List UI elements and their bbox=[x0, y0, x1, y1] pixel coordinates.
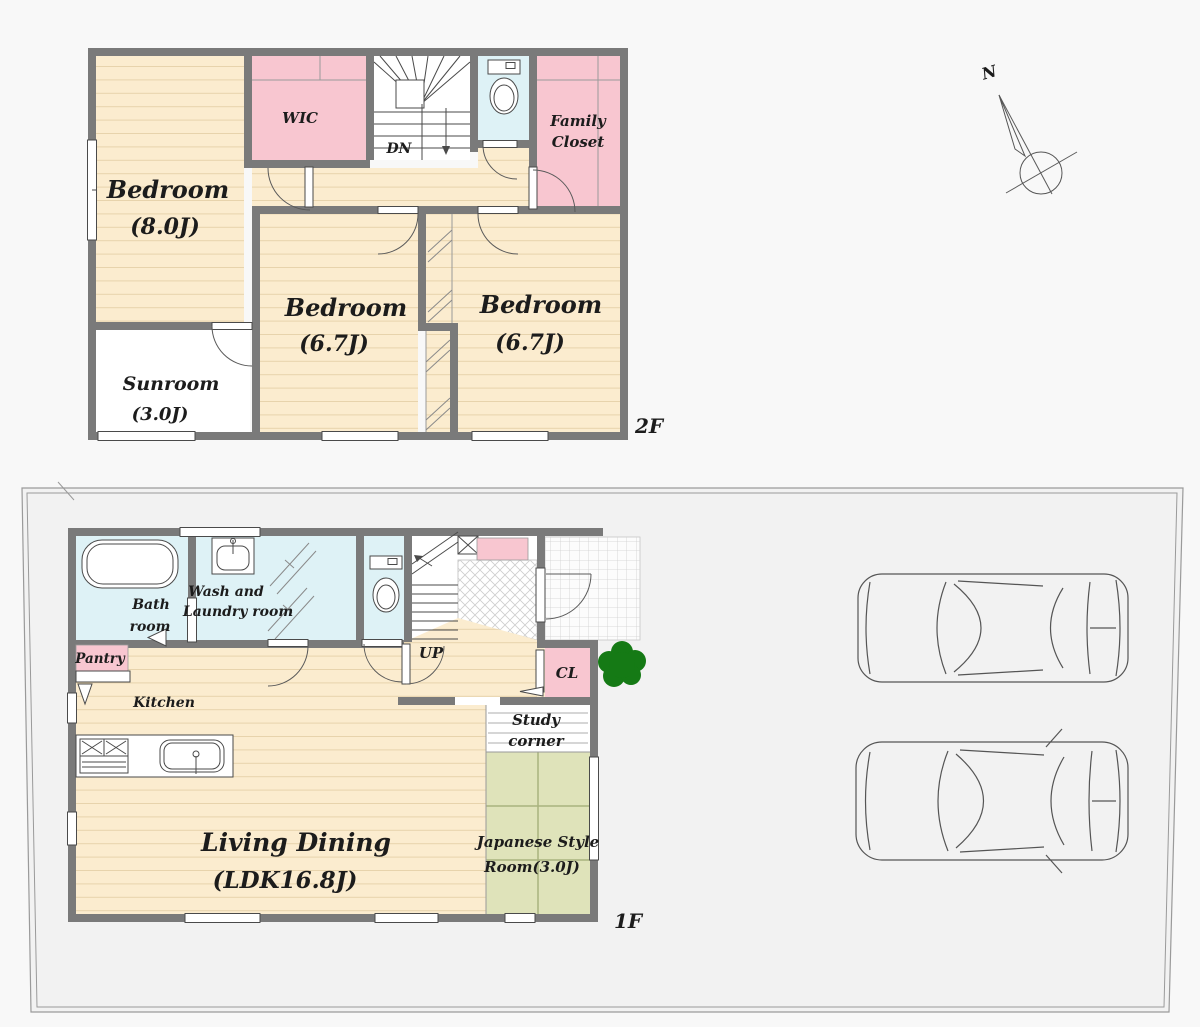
entry-shaft-box bbox=[458, 536, 478, 554]
japanese-room-label-2: Room(3.0J) bbox=[483, 858, 580, 876]
window-south-living-2 bbox=[375, 914, 438, 923]
toilet1f-door-leaf bbox=[362, 640, 402, 647]
bedroom-right-door-leaf bbox=[478, 207, 518, 214]
shoe-cabinet bbox=[477, 538, 528, 560]
bedroom-center-label: Bedroom bbox=[284, 293, 407, 322]
window-sunroom bbox=[98, 432, 195, 441]
window-bedroom-right bbox=[472, 432, 548, 441]
study-label-2: corner bbox=[508, 732, 564, 750]
compass-needle-dart bbox=[999, 95, 1025, 156]
bedroom-main-size: (8.0J) bbox=[130, 214, 200, 240]
pantry-label: Pantry bbox=[74, 651, 126, 667]
compass-cross-line bbox=[1006, 152, 1077, 193]
study-label-1: Study bbox=[512, 711, 561, 729]
floorplan-page: Bath room Wash and Laundry room UP CL Pa… bbox=[0, 0, 1200, 1027]
washbasin-icon bbox=[212, 538, 254, 574]
bedroom-right-size: (6.7J) bbox=[495, 330, 565, 356]
front-door-leaf bbox=[536, 568, 545, 622]
bath-room-label-2: room bbox=[130, 619, 171, 635]
bedroom-center-door-leaf bbox=[378, 207, 418, 214]
stairs-up-label: UP bbox=[419, 644, 444, 662]
closet-cl-door-leaf bbox=[536, 650, 544, 692]
laundry-label-1: Wash and bbox=[188, 584, 264, 600]
compass-needle-line bbox=[999, 95, 1052, 194]
window-bedroom-center bbox=[322, 432, 398, 441]
family-closet-label-2: Closet bbox=[552, 133, 605, 151]
kitchen-counter bbox=[76, 735, 233, 777]
bedroom-main-door-leaf bbox=[305, 167, 313, 207]
wic-floor bbox=[252, 56, 366, 160]
hall-door-leaf bbox=[402, 644, 410, 684]
laundry-label-2: Laundry room bbox=[182, 604, 293, 620]
sunroom-door-leaf bbox=[212, 323, 252, 330]
window-west-1 bbox=[68, 693, 77, 723]
sunroom-size: (3.0J) bbox=[132, 404, 189, 425]
family-closet-label-1: Family bbox=[549, 112, 607, 130]
laundry-door-leaf bbox=[268, 640, 308, 647]
bath-room-label-1: Bath bbox=[131, 597, 170, 613]
family-closet-door-leaf bbox=[529, 167, 537, 209]
living-dining-label-1: Living Dining bbox=[200, 828, 391, 857]
window-west-2 bbox=[68, 812, 77, 845]
opening-hall-study bbox=[455, 697, 500, 705]
floor2-tag: 2F bbox=[634, 414, 665, 438]
bedroom-main-label: Bedroom bbox=[106, 175, 229, 204]
bedroom-center-size: (6.7J) bbox=[299, 331, 369, 357]
japanese-room-label-1: Japanese Style bbox=[474, 833, 599, 851]
floor1-tag: 1F bbox=[614, 909, 644, 933]
toilet-2f-icon bbox=[488, 60, 520, 114]
window-south-living-1 bbox=[185, 914, 260, 923]
compass-north-label: N bbox=[979, 61, 1001, 84]
window-north bbox=[180, 528, 260, 537]
compass: N bbox=[979, 61, 1077, 194]
kitchen-label: Kitchen bbox=[132, 695, 195, 711]
bathtub-icon bbox=[82, 540, 178, 588]
entry-porch bbox=[545, 537, 640, 640]
toilet2f-door-leaf bbox=[483, 141, 517, 148]
window-south-japanese bbox=[505, 914, 535, 923]
stairs-dn-label: DN bbox=[386, 141, 413, 157]
bedroom-right-label: Bedroom bbox=[479, 290, 602, 319]
floorplan-canvas: Bath room Wash and Laundry room UP CL Pa… bbox=[0, 0, 1200, 1027]
wic-label: WIC bbox=[282, 109, 318, 127]
closet-cl-label: CL bbox=[556, 664, 579, 682]
living-dining-label-2: (LDK16.8J) bbox=[213, 867, 358, 894]
family-closet-floor bbox=[537, 56, 620, 206]
sunroom-label: Sunroom bbox=[123, 373, 220, 395]
